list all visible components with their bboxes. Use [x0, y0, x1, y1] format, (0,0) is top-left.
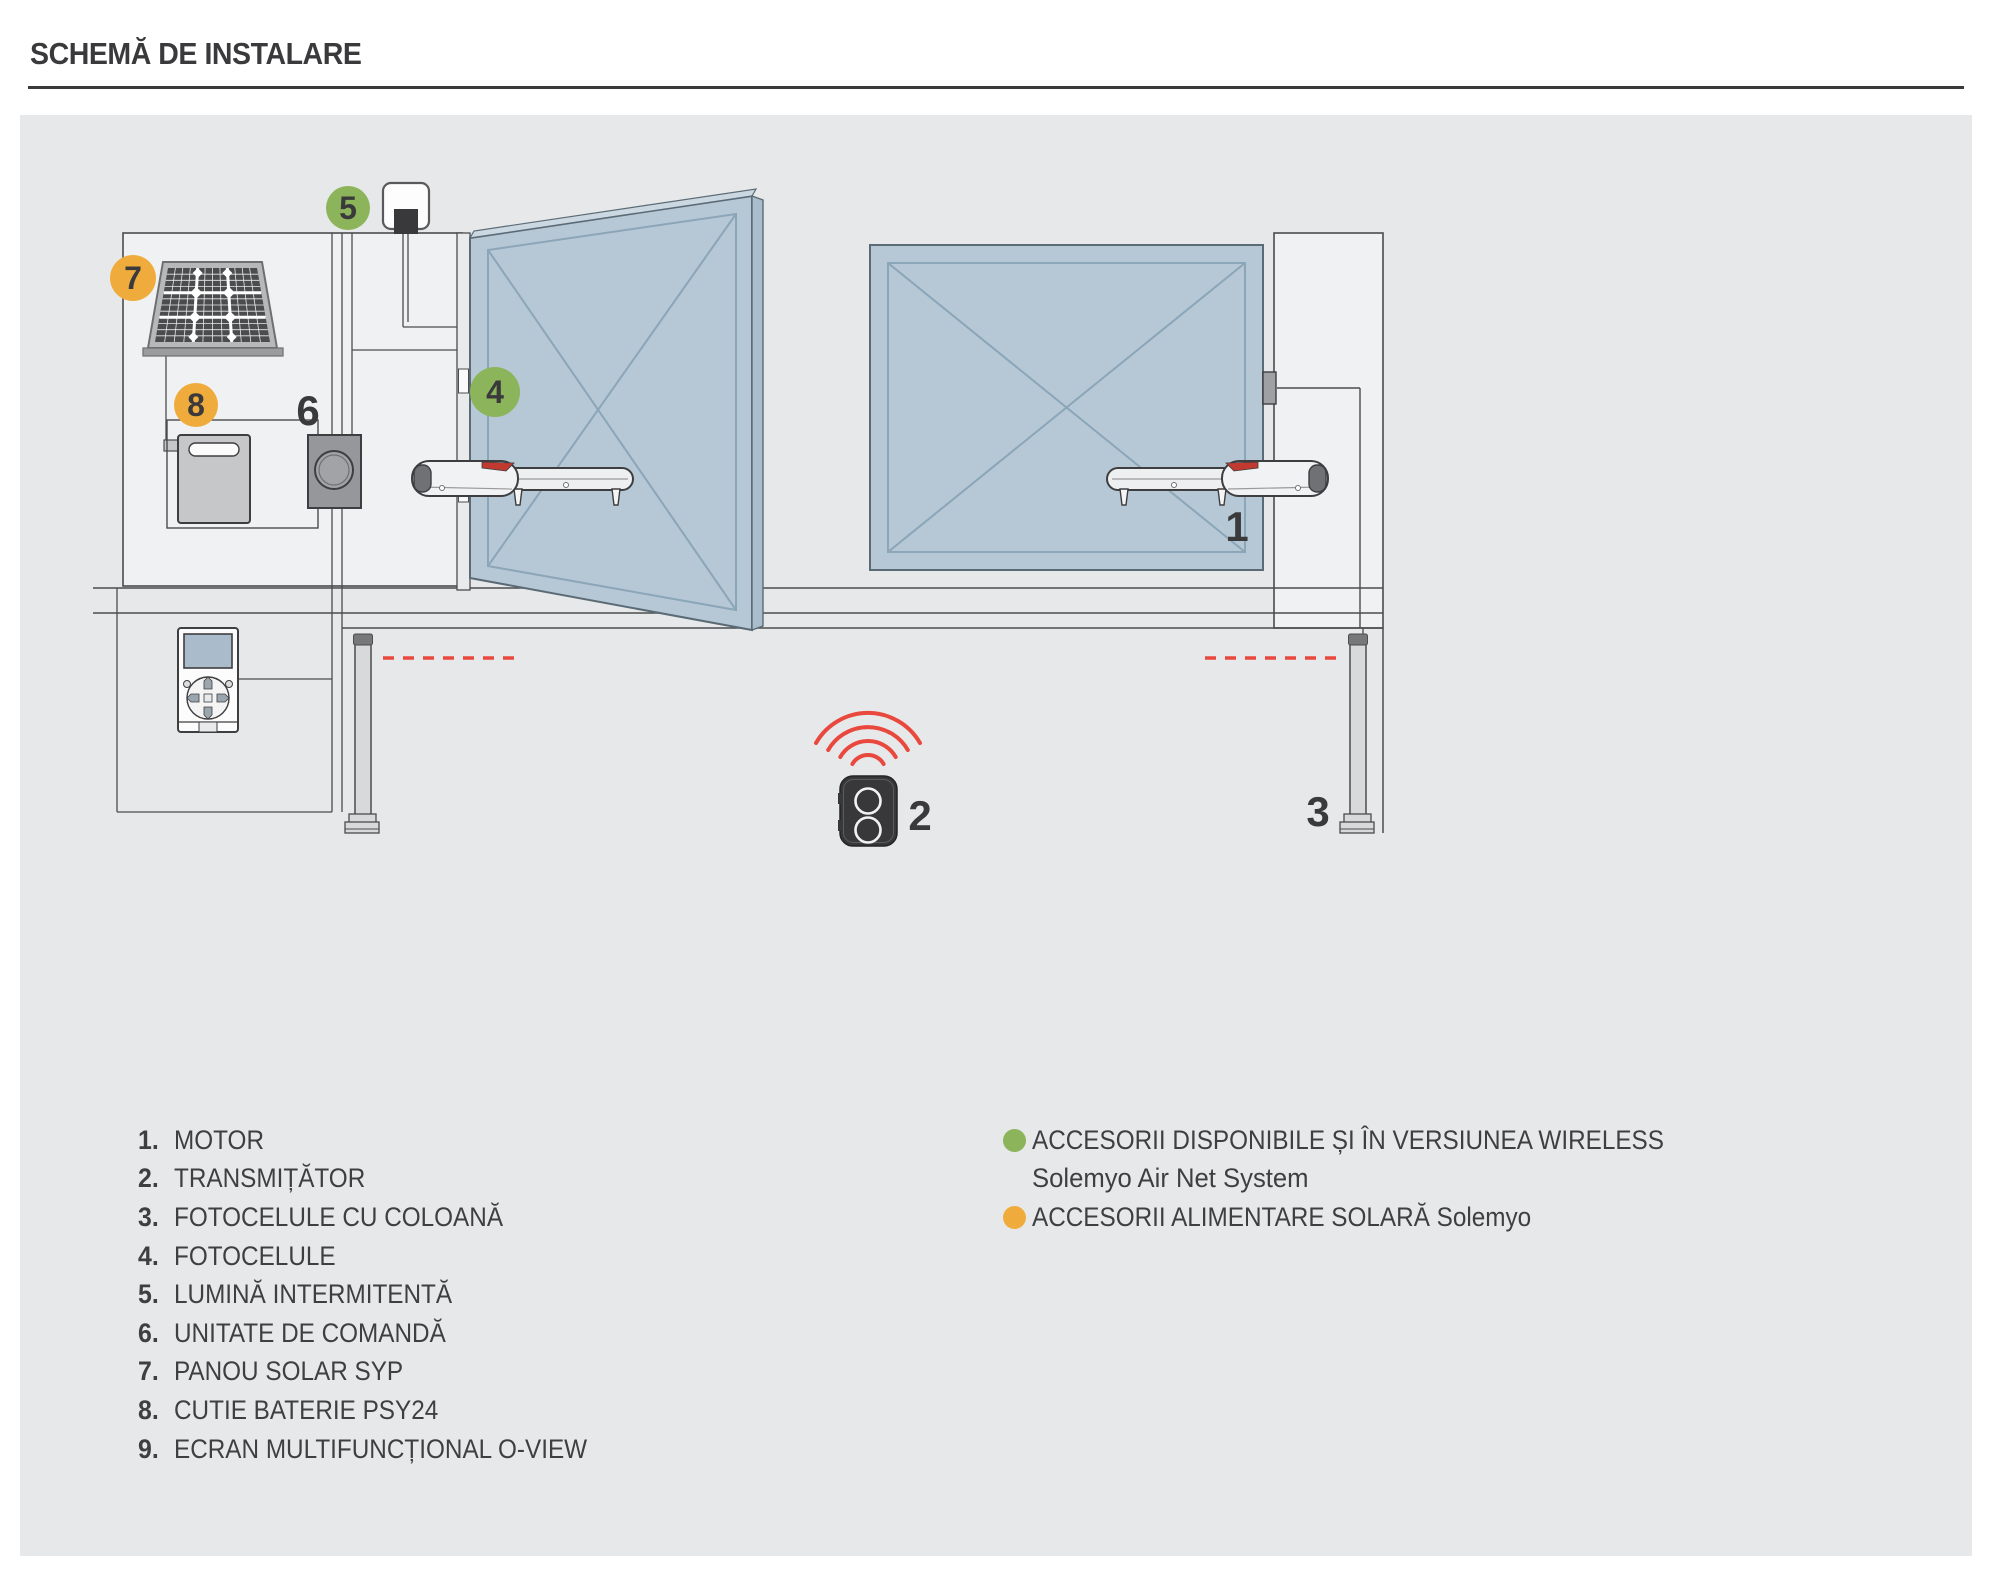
legend-note-solar: ACCESORII ALIMENTARE SOLARĂ Solemyo: [1003, 1198, 1734, 1237]
label-transmitter: 2: [908, 792, 931, 839]
legend-item: 4.FOTOCELULE: [138, 1237, 633, 1276]
flashing-light: [383, 183, 429, 234]
gate-right: [870, 245, 1276, 570]
legend-item: 7.PANOU SOLAR SYP: [138, 1353, 633, 1392]
label-photocell-column: 3: [1306, 788, 1329, 835]
gate-post: [457, 233, 470, 590]
battery-box: [178, 435, 250, 523]
green-dot-icon: [1003, 1129, 1026, 1152]
page-title: SCHEMĂ DE INSTALARE: [30, 36, 361, 72]
svg-text:4: 4: [486, 374, 504, 410]
transmitter: [838, 776, 897, 846]
diagram-panel: 7 8 5 4 6 1 2 3 1.MOTOR 2.TRANSMIȚĂTOR: [20, 115, 1972, 1556]
battery-connector: [164, 440, 178, 451]
oview-display: [178, 628, 238, 732]
legend-item: 3.FOTOCELULE CU COLOANĂ: [138, 1198, 633, 1237]
label-control-unit: 6: [296, 387, 319, 434]
svg-text:8: 8: [187, 387, 205, 423]
title-rule: [28, 86, 1964, 89]
page: SCHEMĂ DE INSTALARE: [0, 0, 1992, 1572]
control-unit: [308, 435, 361, 508]
orange-dot-icon: [1003, 1206, 1026, 1229]
legend-item: 6.UNITATE DE COMANDĂ: [138, 1314, 633, 1353]
svg-text:7: 7: [124, 260, 142, 296]
legend-note-wireless-sub: Solemyo Air Net System: [1003, 1160, 1734, 1199]
badge-flashing-light: 5: [326, 186, 370, 230]
legend-item: 2.TRANSMIȚĂTOR: [138, 1160, 633, 1199]
svg-text:5: 5: [339, 190, 357, 226]
legend-item: 5.LUMINĂ INTERMITENTĂ: [138, 1275, 633, 1314]
gate-left: [470, 189, 763, 630]
gate-hinge: [1263, 372, 1276, 404]
legend-list: 1.MOTOR 2.TRANSMIȚĂTOR 3.FOTOCELULE CU C…: [138, 1121, 633, 1468]
legend-note-wireless: ACCESORII DISPONIBILE ȘI ÎN VERSIUNEA WI…: [1003, 1121, 1734, 1160]
right-wall: [1274, 233, 1383, 628]
badge-solar-panel: 7: [110, 255, 156, 301]
legend-notes: ACCESORII DISPONIBILE ȘI ÎN VERSIUNEA WI…: [1003, 1121, 1734, 1237]
solar-panel: [143, 262, 283, 356]
legend-item: 1.MOTOR: [138, 1121, 633, 1160]
legend-item: 8.CUTIE BATERIE PSY24: [138, 1391, 633, 1430]
badge-battery-box: 8: [174, 383, 218, 427]
badge-photocells: 4: [470, 367, 520, 417]
legend-item: 9.ECRAN MULTIFUNCȚIONAL O-VIEW: [138, 1430, 633, 1469]
label-motor: 1: [1225, 503, 1248, 550]
